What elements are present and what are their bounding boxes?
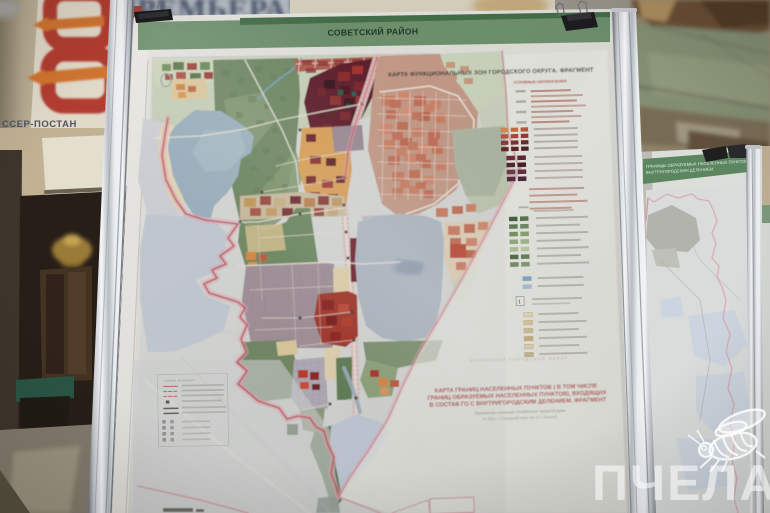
svg-text:ПЧЕЛА: ПЧЕЛА xyxy=(592,455,770,511)
